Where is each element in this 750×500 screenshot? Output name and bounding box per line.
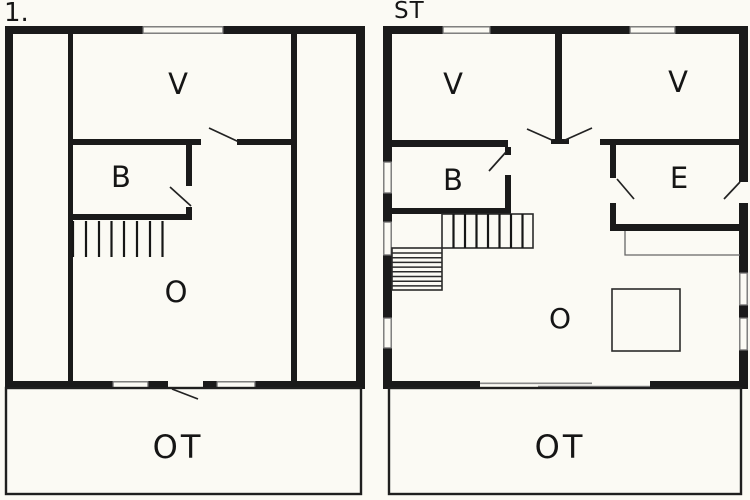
room-label-terrace: OT	[535, 428, 586, 466]
door-swing	[172, 389, 198, 399]
room-label-terrace: OT	[153, 428, 204, 466]
plan-ground-floor: ST	[383, 0, 748, 494]
room-label-bedroom: V	[668, 65, 688, 99]
room-label-bedroom: V	[168, 67, 188, 101]
window	[740, 273, 747, 305]
stair-run-outline	[392, 248, 442, 290]
door-swing	[209, 128, 238, 142]
floorplan-image: 1. V B O OT ST	[0, 0, 750, 500]
door-swing	[489, 152, 506, 171]
door-swing	[527, 129, 553, 141]
door-swing	[724, 182, 740, 199]
window	[443, 27, 490, 33]
floorplan-svg: 1. V B O OT ST	[0, 0, 750, 500]
closet-outline	[625, 231, 740, 255]
room-label-entrance: E	[670, 161, 688, 195]
door-swing	[564, 128, 592, 141]
room-label-bathroom: B	[111, 160, 131, 194]
door-swing	[170, 187, 191, 206]
stairs	[73, 221, 163, 257]
door-swing	[617, 179, 634, 199]
room-label-livingroom: O	[549, 302, 571, 335]
plan-title-first-floor: 1.	[4, 0, 29, 28]
window	[630, 27, 675, 33]
plan-first-floor: 1. V B O OT	[4, 0, 365, 494]
window	[384, 222, 391, 255]
window	[384, 318, 391, 348]
window	[143, 27, 223, 33]
room-label-bedroom: V	[443, 67, 463, 101]
room-label-bathroom: B	[443, 163, 463, 197]
fireplace	[612, 289, 680, 351]
room-label-livingroom: O	[165, 275, 188, 309]
window	[384, 162, 391, 193]
plan-title-ground-floor: ST	[394, 0, 425, 24]
stairs	[392, 214, 533, 290]
window	[740, 318, 747, 350]
